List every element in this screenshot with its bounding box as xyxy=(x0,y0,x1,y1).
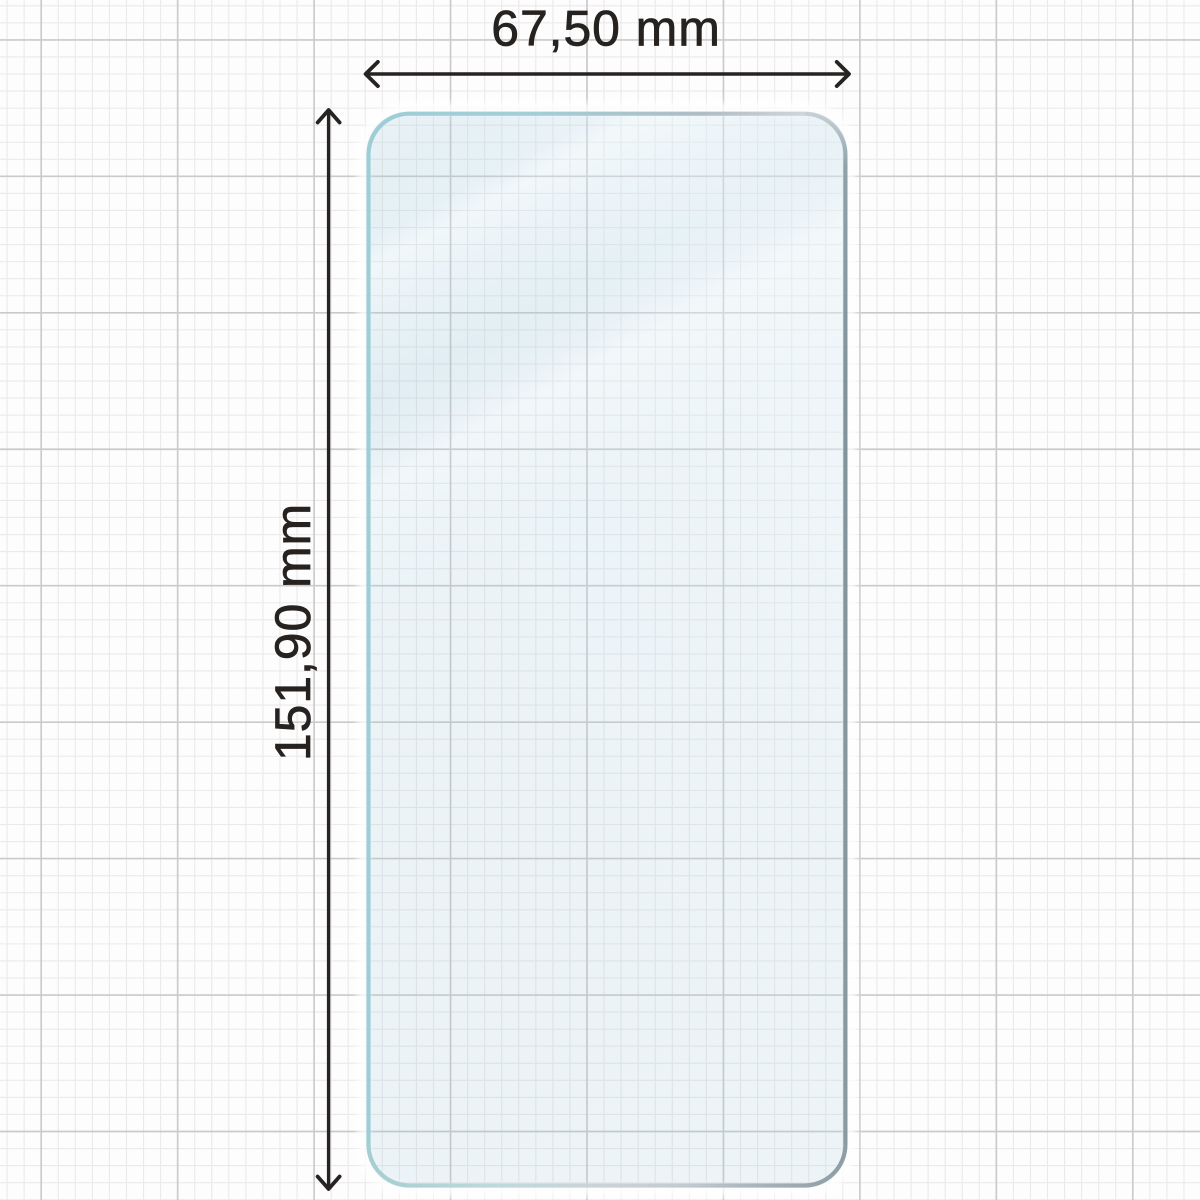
svg-text:151,90 mm: 151,90 mm xyxy=(265,503,321,761)
svg-text:67,50 mm: 67,50 mm xyxy=(491,0,721,56)
